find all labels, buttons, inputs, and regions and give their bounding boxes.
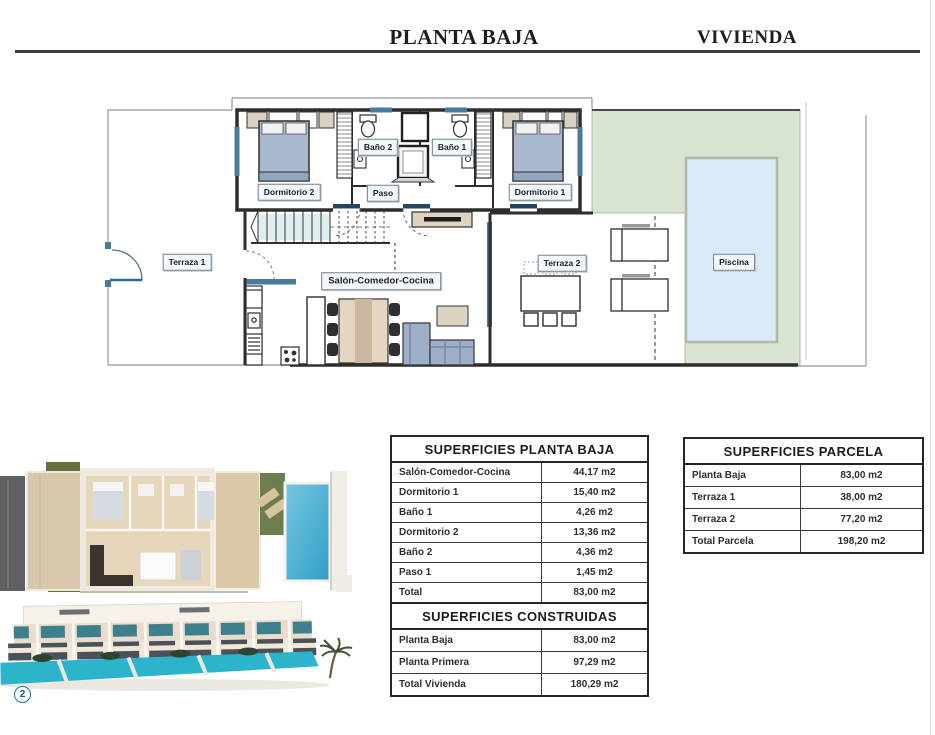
room-label-piscina: Piscina	[713, 254, 755, 271]
table-superficies-construidas: SUPERFICIES CONSTRUIDAS Planta Baja83,00…	[390, 602, 649, 697]
table-row: Total Vivienda180,29 m2	[392, 674, 647, 695]
row-value: 44,17 m2	[542, 463, 647, 482]
row-label: Dormitorio 1	[392, 483, 542, 502]
wardrobe-icon	[476, 112, 491, 178]
room-label-bano2: Baño 2	[358, 139, 398, 156]
row-label: Planta Baja	[685, 465, 801, 486]
row-label: Planta Primera	[392, 652, 542, 673]
outdoor-table-icon	[521, 262, 580, 326]
room-label-dormitorio2: Dormitorio 2	[258, 184, 321, 201]
table-row: Planta Primera97,29 m2	[392, 652, 647, 674]
row-label: Total Parcela	[685, 531, 801, 552]
row-label: Terraza 1	[685, 487, 801, 508]
row-label: Paso 1	[392, 563, 542, 582]
table-row: Baño 24,36 m2	[392, 543, 647, 563]
island-icon	[307, 297, 325, 365]
table-row: Paso 11,45 m2	[392, 563, 647, 583]
page: PLANTA BAJA VIVIENDA	[0, 0, 935, 735]
row-label: Salón-Comedor-Cocina	[392, 463, 542, 482]
table-row: Terraza 277,20 m2	[685, 509, 922, 531]
plan-number-badge: 2	[14, 686, 31, 703]
table-superficies-parcela: SUPERFICIES PARCELA Planta Baja83,00 m2T…	[683, 437, 924, 554]
header-divider	[15, 50, 920, 53]
row-label: Baño 1	[392, 503, 542, 522]
table-row: Planta Baja83,00 m2	[392, 630, 647, 652]
tv-unit-icon	[412, 212, 472, 227]
floor-plan	[100, 90, 880, 380]
row-value: 83,00 m2	[542, 583, 647, 602]
room-label-terraza2: Terraza 2	[538, 255, 587, 272]
table-title: SUPERFICIES CONSTRUIDAS	[392, 604, 647, 630]
row-label: Total Vivienda	[392, 674, 542, 695]
row-label: Dormitorio 2	[392, 523, 542, 542]
room-label-paso: Paso	[367, 185, 399, 202]
lounger-icon	[611, 224, 668, 311]
table-row: Baño 14,26 m2	[392, 503, 647, 523]
pool	[686, 158, 777, 342]
scan-edge-line	[930, 0, 931, 735]
row-value: 83,00 m2	[542, 630, 647, 651]
row-value: 83,00 m2	[801, 465, 922, 486]
row-value: 1,45 m2	[542, 563, 647, 582]
render-topdown-plan	[0, 448, 360, 603]
row-value: 4,36 m2	[542, 543, 647, 562]
room-label-salon: Salón-Comedor-Cocina	[321, 272, 441, 290]
dining-table-icon	[327, 299, 400, 363]
coffee-table-icon	[437, 306, 468, 326]
room-label-dormitorio1: Dormitorio 1	[509, 184, 572, 201]
row-value: 77,20 m2	[801, 509, 922, 530]
hob-icon	[281, 347, 299, 365]
room-label-bano1: Baño 1	[432, 139, 472, 156]
row-label: Baño 2	[392, 543, 542, 562]
table-row: Terraza 138,00 m2	[685, 487, 922, 509]
row-value: 4,26 m2	[542, 503, 647, 522]
sofa-icon	[403, 323, 474, 365]
door-arc-icon	[246, 251, 274, 279]
row-label: Total	[392, 583, 542, 602]
row-value: 198,20 m2	[801, 531, 922, 552]
page-subtitle: VIVIENDA	[697, 27, 797, 49]
render-building-row	[0, 598, 360, 698]
table-title: SUPERFICIES PARCELA	[685, 439, 922, 465]
row-value: 15,40 m2	[542, 483, 647, 502]
table-row: Total Parcela198,20 m2	[685, 531, 922, 552]
palm-tree-icon	[320, 638, 352, 678]
table-row: Planta Baja83,00 m2	[685, 465, 922, 487]
table-row: Dormitorio 115,40 m2	[392, 483, 647, 503]
table-title: SUPERFICIES PLANTA BAJA	[392, 437, 647, 463]
table-superficies-planta-baja: SUPERFICIES PLANTA BAJA Salón-Comedor-Co…	[390, 435, 649, 604]
wardrobe-icon	[337, 112, 352, 178]
bed-icon	[259, 121, 309, 181]
bed-icon	[513, 121, 563, 181]
row-value: 97,29 m2	[542, 652, 647, 673]
page-title: PLANTA BAJA	[389, 25, 538, 50]
table-row: Salón-Comedor-Cocina44,17 m2	[392, 463, 647, 483]
kitchen-counter-icon	[246, 286, 262, 365]
entrance-door-icon	[104, 249, 142, 280]
row-value: 13,36 m2	[542, 523, 647, 542]
row-value: 38,00 m2	[801, 487, 922, 508]
row-label: Planta Baja	[392, 630, 542, 651]
table-row: Dormitorio 213,36 m2	[392, 523, 647, 543]
room-label-terraza1: Terraza 1	[163, 254, 212, 271]
stairs	[251, 211, 390, 243]
table-row: Total83,00 m2	[392, 583, 647, 602]
row-value: 180,29 m2	[542, 674, 647, 695]
row-label: Terraza 2	[685, 509, 801, 530]
